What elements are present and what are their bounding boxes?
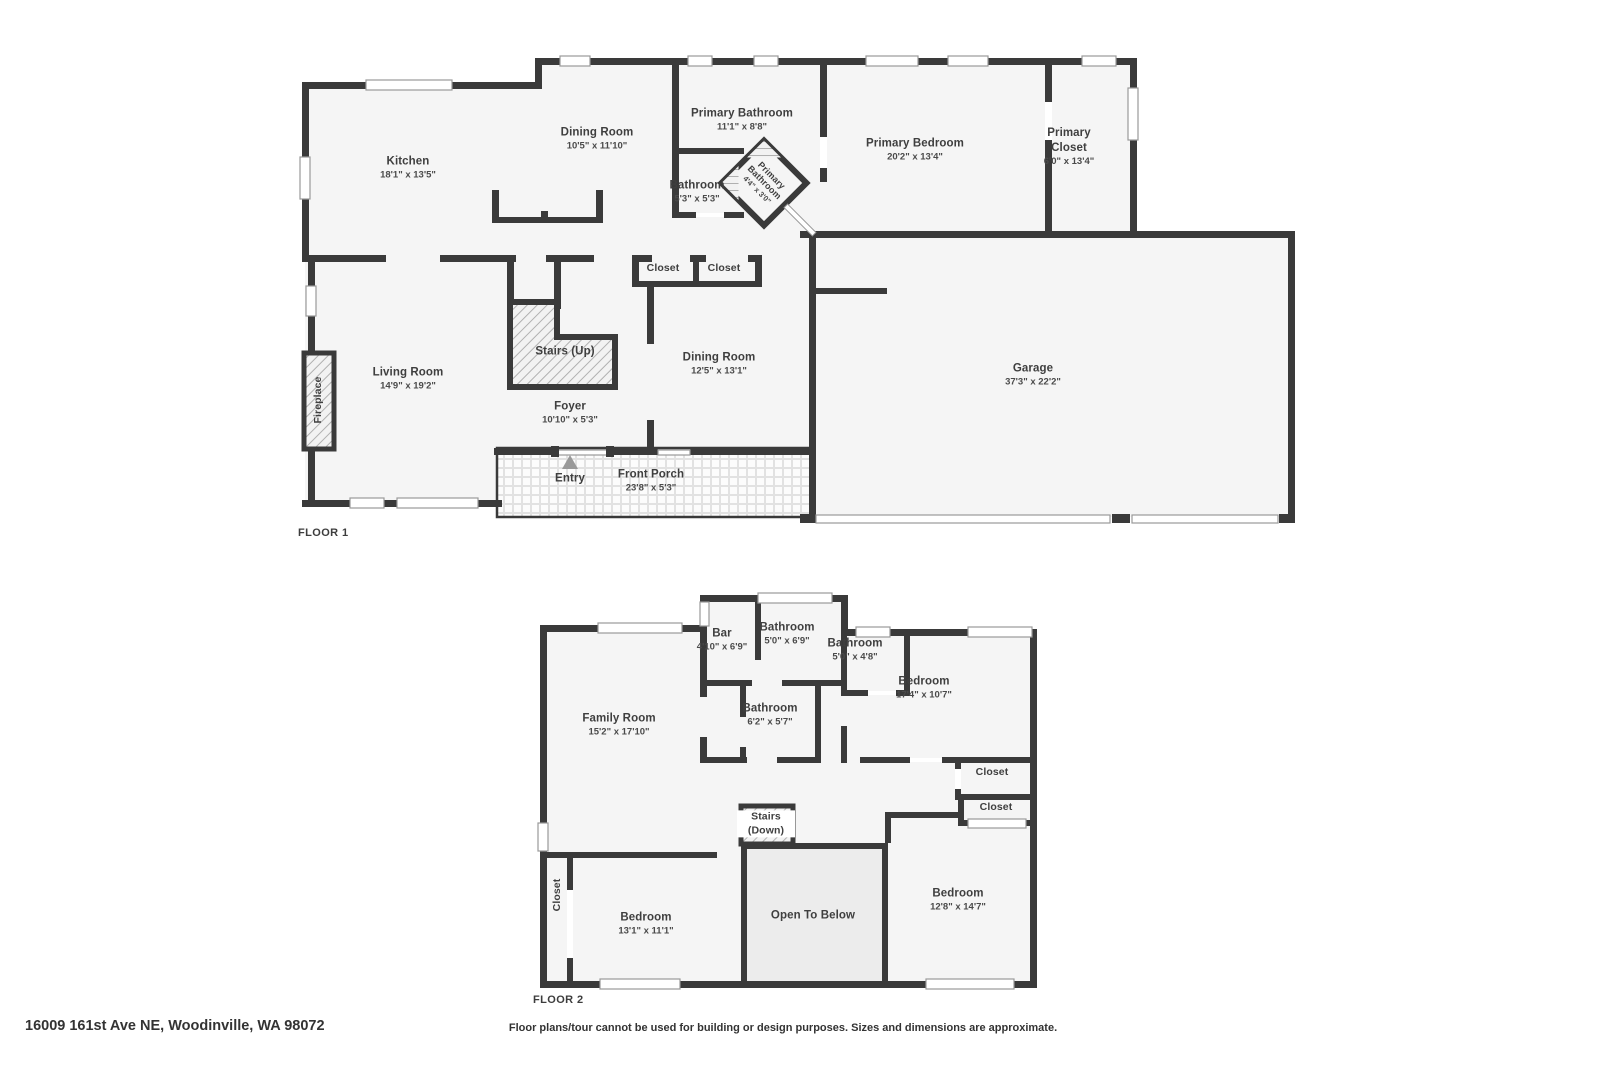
room-label-bathroom-f1: Bathroom 5'3" x 5'3" [669, 178, 724, 205]
room-label-kitchen: Kitchen 18'1" x 13'5" [380, 154, 436, 181]
floor2-label: FLOOR 2 [533, 994, 583, 1006]
room-label-closet-left: Closet [551, 879, 565, 912]
room-label-closet-b: Closet [708, 262, 741, 276]
floorplan-drawing [0, 0, 1600, 1067]
room-label-dining-room-upper: Dining Room 10'5" x 11'10" [561, 125, 634, 152]
room-label-family-room: Family Room 15'2" x 17'10" [582, 711, 655, 738]
room-label-bedroom-1: Bedroom 17'4" x 10'7" [896, 674, 952, 701]
room-label-bedroom-3: Bedroom 12'8" x 14'7" [930, 886, 986, 913]
room-label-bar: Bar 4'10" x 6'9" [697, 626, 748, 653]
room-label-foyer: Foyer 10'10" x 5'3" [542, 399, 598, 426]
room-label-closet-2: Closet [980, 801, 1013, 815]
floor1-plan [300, 56, 1295, 523]
room-label-front-porch: Front Porch 23'8" x 5'3" [618, 467, 684, 494]
room-label-garage: Garage 37'3" x 22'2" [1005, 361, 1061, 388]
room-label-bedroom-2: Bedroom 13'1" x 11'1" [618, 910, 673, 937]
floor2-plan [538, 593, 1037, 989]
room-label-stairs-down: Stairs (Down) [737, 810, 795, 837]
room-label-stairs-up: Stairs (Up) [535, 345, 594, 360]
property-address: 16009 161st Ave NE, Woodinville, WA 9807… [25, 1018, 325, 1034]
room-label-primary-closet: Primary Closet 6'0" x 13'4" [1037, 126, 1101, 168]
room-label-bathroom-1: Bathroom 5'0" x 6'9" [759, 620, 814, 647]
floor1-label: FLOOR 1 [298, 527, 348, 539]
room-label-closet-1: Closet [976, 766, 1009, 780]
room-label-bathroom-2: Bathroom 5'0" x 4'8" [827, 636, 882, 663]
room-label-closet-a: Closet [647, 262, 680, 276]
room-label-primary-bedroom: Primary Bedroom 20'2" x 13'4" [866, 136, 964, 163]
disclaimer-text: Floor plans/tour cannot be used for buil… [509, 1022, 1057, 1034]
room-label-bathroom-3: Bathroom 6'2" x 5'7" [742, 701, 797, 728]
room-label-entry: Entry [555, 472, 585, 487]
room-label-fireplace: Fireplace [312, 376, 326, 423]
room-label-primary-bathroom: Primary Bathroom 11'1" x 8'8" [691, 106, 793, 133]
room-label-dining-room-lower: Dining Room 12'5" x 13'1" [683, 350, 756, 377]
room-label-living-room: Living Room 14'9" x 19'2" [373, 365, 444, 392]
room-label-open-to-below: Open To Below [771, 909, 855, 924]
